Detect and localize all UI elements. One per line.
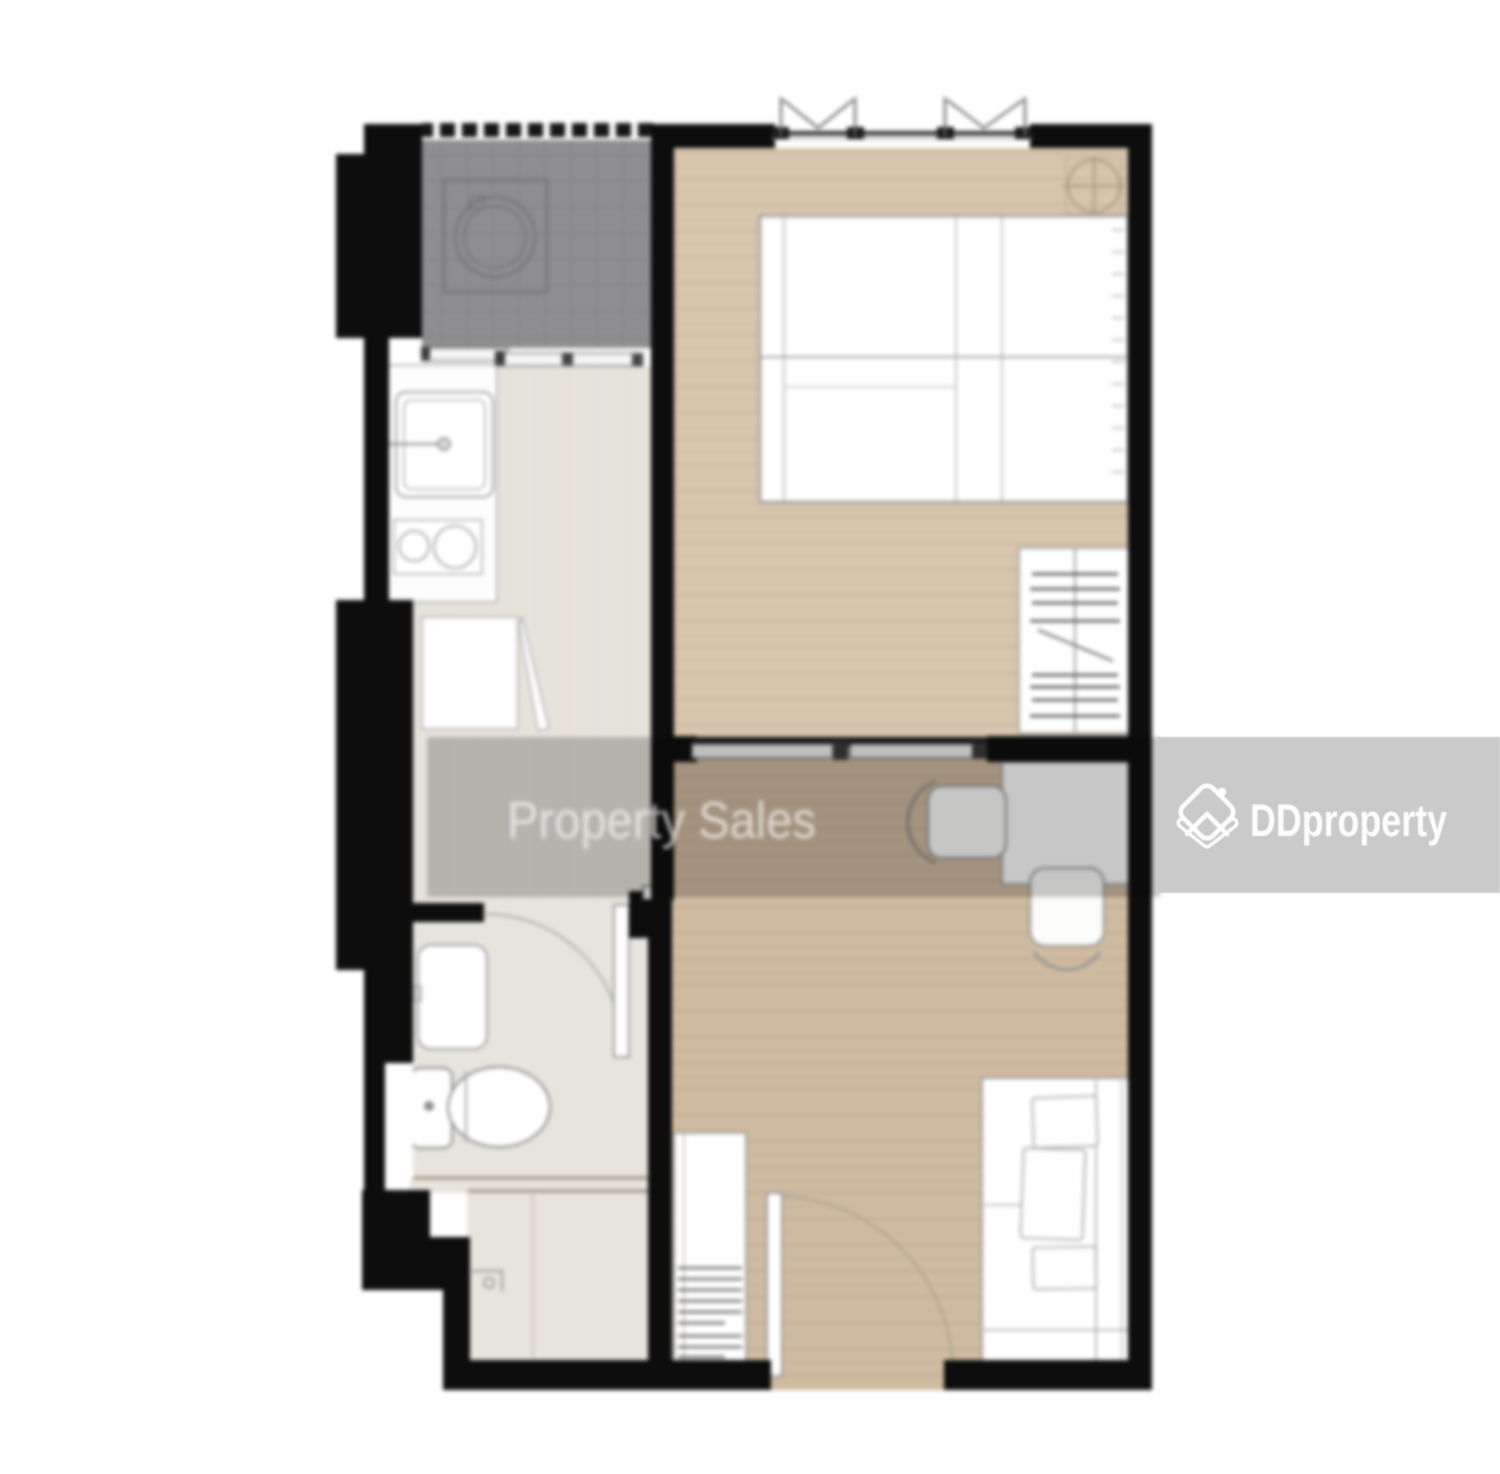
svg-text:DDproperty: DDproperty bbox=[1250, 795, 1447, 846]
